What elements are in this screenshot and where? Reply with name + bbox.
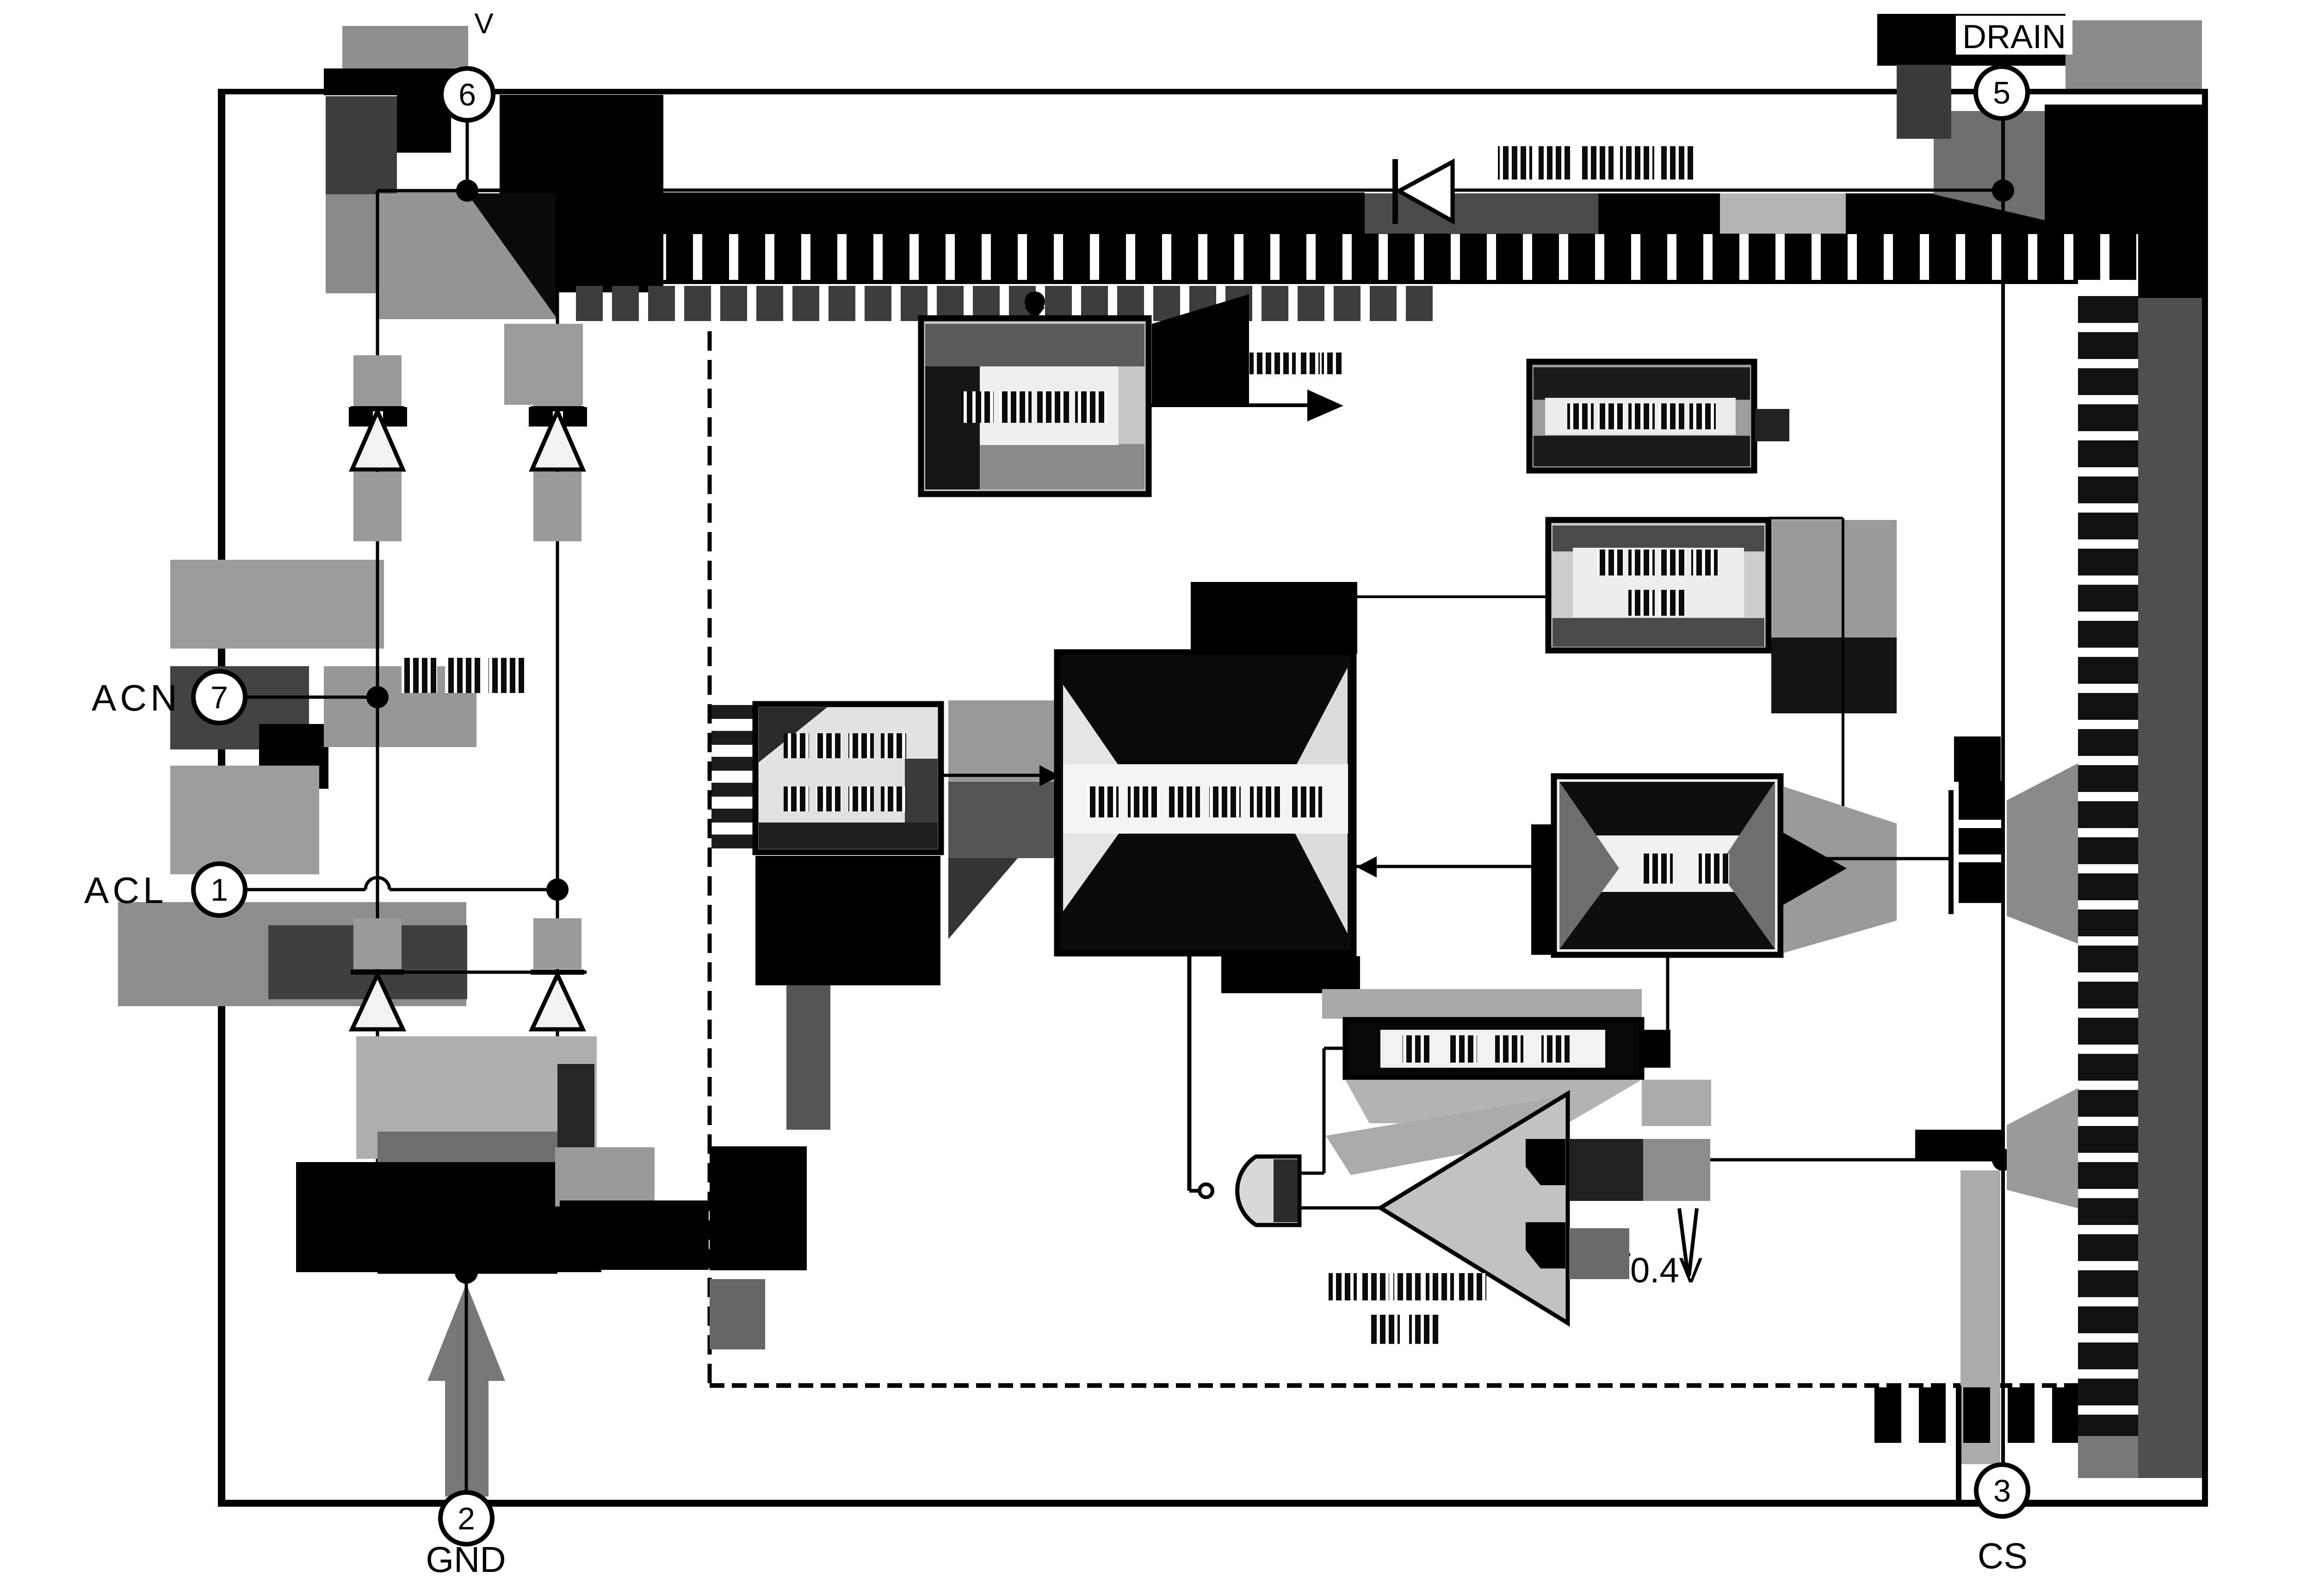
svg-text:3: 3 (1993, 1473, 2011, 1509)
svg-text:GND: GND (426, 1539, 506, 1580)
svg-text:2: 2 (458, 1501, 475, 1536)
svg-text:ACL: ACL (84, 870, 167, 911)
svg-text:1: 1 (210, 872, 228, 908)
svg-text:DRAIN: DRAIN (1962, 19, 2066, 56)
svg-text:5: 5 (1993, 75, 2010, 111)
svg-text:V: V (474, 8, 494, 40)
svg-text:7: 7 (210, 680, 228, 715)
svg-text:ACN: ACN (92, 677, 181, 718)
svg-text:6: 6 (458, 77, 476, 112)
svg-text:CS: CS (1978, 1535, 2028, 1576)
